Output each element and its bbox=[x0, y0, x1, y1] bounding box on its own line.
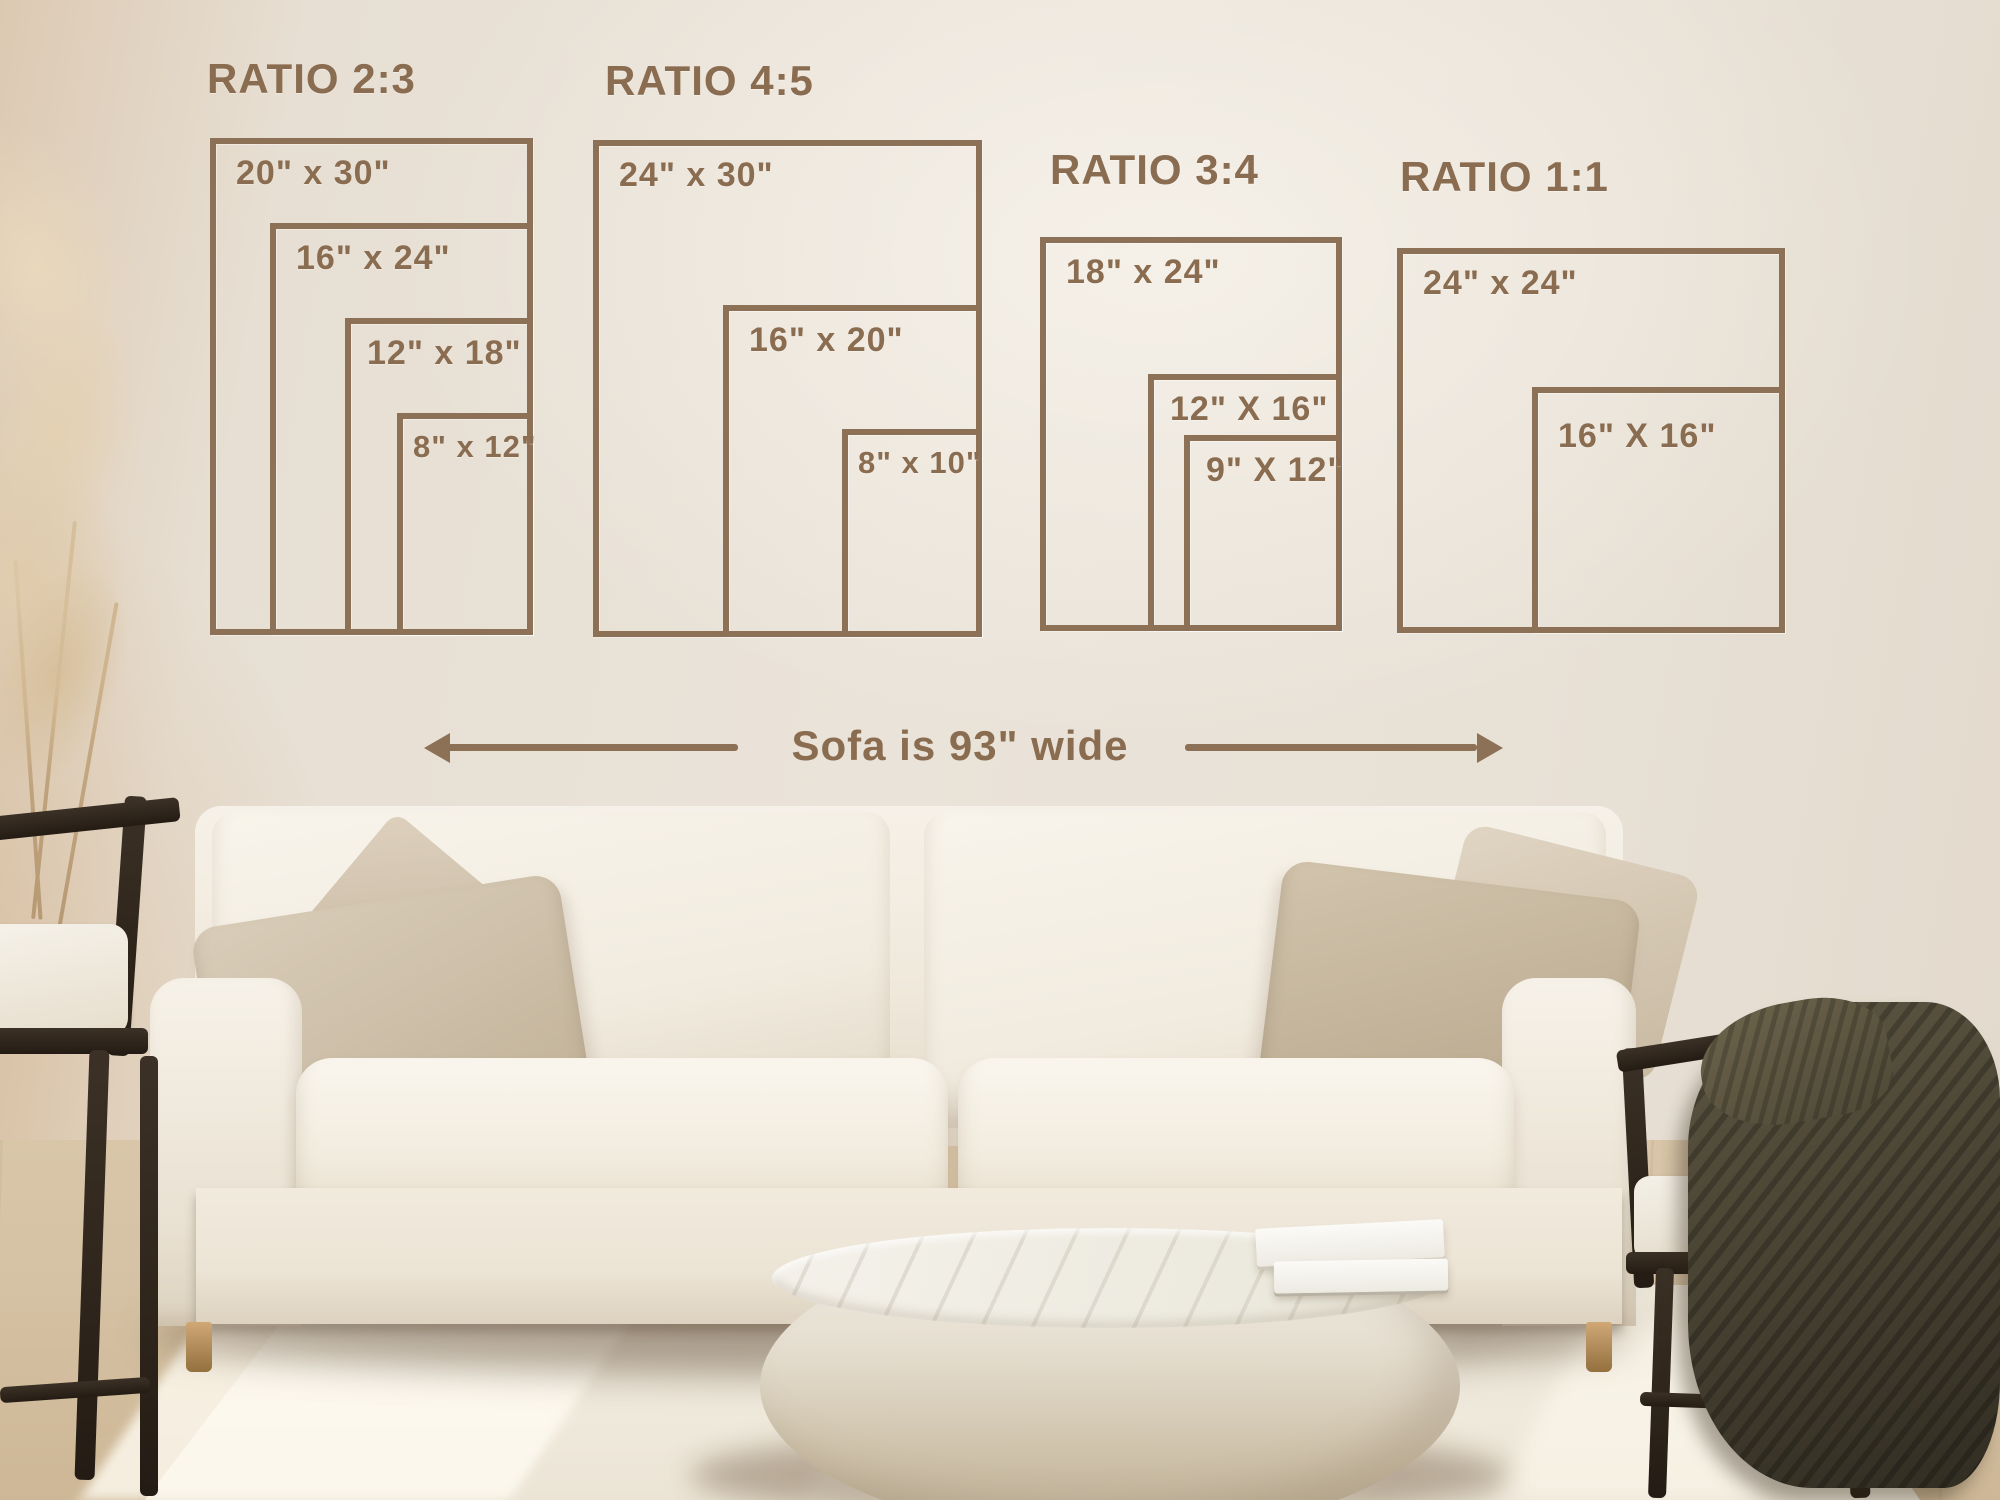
living-room-scene: RATIO 2:3 20" x 30" 16" x 24" 12" x 18" … bbox=[0, 0, 2000, 1500]
size-frame-9x12: 9" X 12" bbox=[1184, 435, 1342, 631]
ratio-group-title: RATIO 1:1 bbox=[1400, 153, 1609, 201]
sofa-leg bbox=[186, 1322, 212, 1372]
chair-cushion bbox=[0, 924, 128, 1036]
size-frame-8x10: 8" x 10" bbox=[842, 429, 982, 637]
chair-leg bbox=[140, 1056, 158, 1496]
arrow-shaft bbox=[446, 744, 738, 751]
arrow-shaft bbox=[1185, 744, 1477, 751]
ratio-group-title: RATIO 4:5 bbox=[605, 57, 814, 105]
sofa-leg bbox=[1586, 1322, 1612, 1372]
sofa-width-label: Sofa is 93" wide bbox=[760, 722, 1160, 770]
book bbox=[1274, 1258, 1449, 1293]
arrow-right-icon bbox=[1477, 733, 1503, 763]
chair-seat-frame bbox=[0, 1028, 148, 1054]
ratio-group-title: RATIO 2:3 bbox=[207, 55, 416, 103]
size-frame-16x16: 16" X 16" bbox=[1532, 387, 1785, 633]
ratio-group-title: RATIO 3:4 bbox=[1050, 146, 1259, 194]
size-frame-8x12: 8" x 12" bbox=[397, 413, 533, 635]
